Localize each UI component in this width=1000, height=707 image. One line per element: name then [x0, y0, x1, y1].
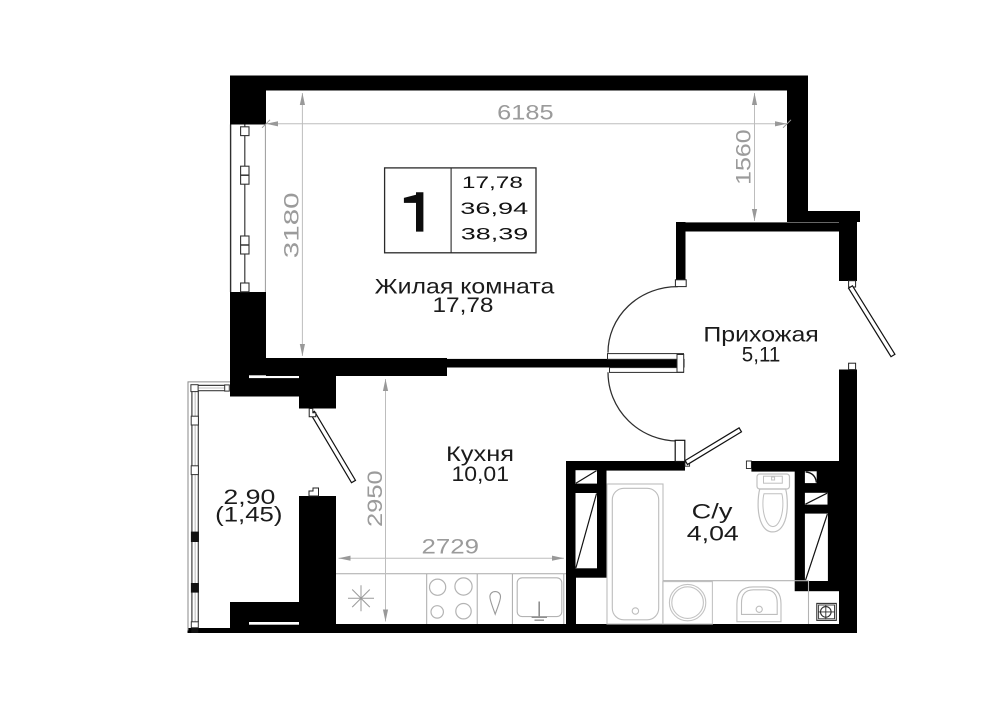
svg-text:(1,45): (1,45) [215, 504, 282, 527]
svg-text:17,78: 17,78 [462, 173, 523, 192]
svg-text:38,39: 38,39 [461, 224, 528, 243]
svg-text:2729: 2729 [422, 535, 480, 558]
svg-text:С/у: С/у [692, 501, 733, 524]
svg-text:17,78: 17,78 [433, 294, 494, 317]
svg-text:36,94: 36,94 [460, 199, 528, 218]
svg-text:5,11: 5,11 [742, 344, 781, 367]
svg-text:10,01: 10,01 [452, 463, 510, 486]
svg-text:3180: 3180 [281, 192, 304, 258]
svg-text:1560: 1560 [733, 129, 756, 185]
svg-text:6185: 6185 [497, 101, 553, 124]
svg-text:4,04: 4,04 [687, 523, 739, 546]
svg-text:2950: 2950 [364, 470, 387, 527]
